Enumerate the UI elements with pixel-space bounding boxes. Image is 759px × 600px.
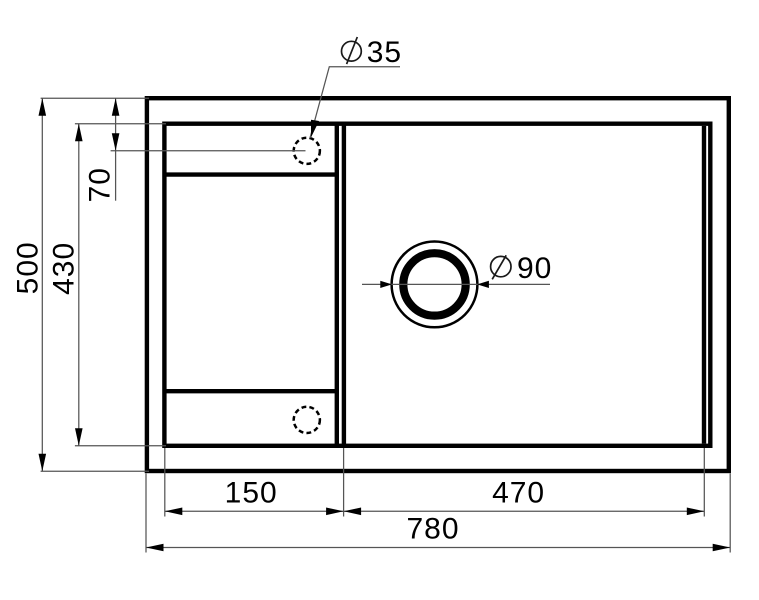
svg-text:70: 70 — [83, 167, 116, 202]
svg-text:90: 90 — [517, 252, 552, 285]
svg-text:35: 35 — [367, 36, 402, 69]
svg-text:780: 780 — [406, 513, 459, 546]
svg-text:500: 500 — [11, 241, 44, 294]
svg-text:430: 430 — [48, 242, 81, 295]
svg-text:150: 150 — [225, 477, 278, 510]
svg-text:470: 470 — [492, 477, 545, 510]
